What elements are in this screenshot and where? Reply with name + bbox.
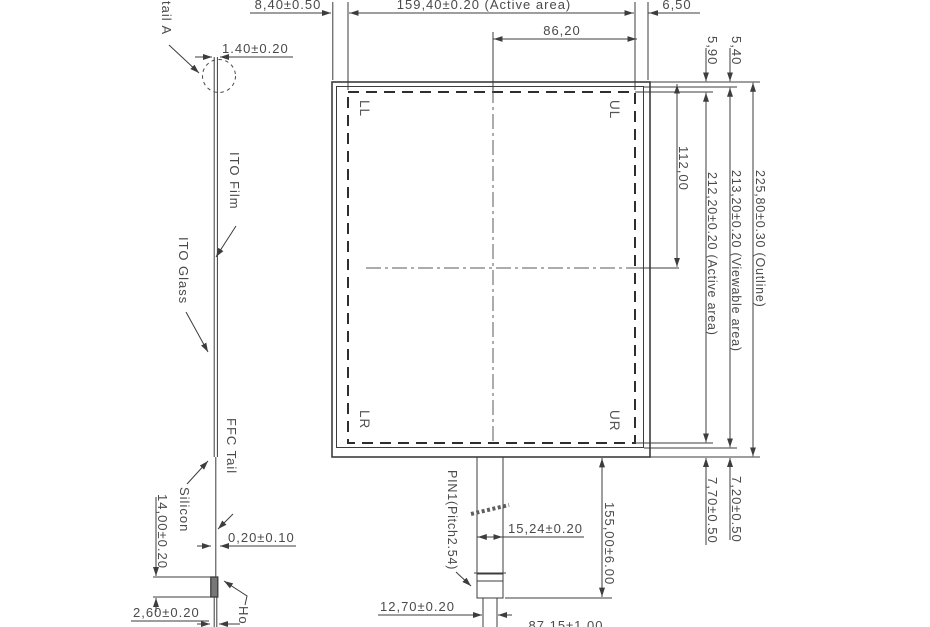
- side-panel-profile: [211, 57, 218, 627]
- hot-bar-label: Ho: [236, 606, 251, 625]
- ito-film-label: ITO Film: [227, 152, 242, 210]
- dim-film-thickness: 0,20±0.10: [197, 530, 296, 546]
- dim-pin-span-text: 12,70±0.20: [380, 599, 455, 614]
- detail-a-label: tail A: [159, 1, 174, 35]
- dim-connector-thickness-text: 2,60±0.20: [133, 605, 200, 620]
- side-hotbar-block: [211, 577, 218, 597]
- corner-label-ur: UR: [607, 410, 622, 432]
- ito-film-leader: [216, 226, 236, 257]
- ffc-tail-leader: [218, 514, 233, 529]
- silicon-leader: [187, 461, 208, 484]
- corner-label-ul: UL: [607, 100, 622, 119]
- pin1-leader: [456, 572, 471, 586]
- ffc-tail-front: [471, 457, 509, 627]
- dim-connector-thickness: 2,60±0.20: [131, 605, 240, 624]
- dim-center-right-text: 86,20: [543, 23, 581, 38]
- silicon-label: Silicon: [177, 487, 192, 532]
- dim-stiffener-text: 14,00±0.20: [155, 494, 170, 569]
- ffc-tail-label: FFC Tail: [224, 418, 239, 474]
- ito-glass-leader: [186, 312, 208, 352]
- corner-label-ll: LL: [357, 100, 372, 117]
- dim-outline-height-text: 225,80±0.30 (Outline): [753, 170, 767, 308]
- outline-rect: [332, 82, 650, 457]
- front-view: LL UL LR UR 8,40±0.50 159,40±0.20 (Activ…: [250, 0, 767, 627]
- dim-bottom-active-text: 7,70±0.50: [705, 477, 720, 544]
- dim-left-margin-text: 8,40±0.50: [255, 0, 322, 12]
- dim-active-width-text: 159,40±0.20 (Active area): [397, 0, 572, 12]
- dim-active-height-text: 212,20±0.20 (Active area): [705, 172, 719, 336]
- hot-bar-leader: [224, 581, 247, 605]
- pin1-label: PIN1(Pitch2.54): [445, 470, 459, 570]
- drawing-canvas: tail A 1.40±0.20 ITO Film ITO Glass FFC …: [0, 0, 930, 627]
- viewable-area-rect: [337, 87, 644, 448]
- dim-tail-width-text: 15,24±0.20: [508, 521, 583, 536]
- top-dimensions: 8,40±0.50 159,40±0.20 (Active area) 6,50…: [250, 0, 700, 90]
- detail-a-leader: [169, 45, 199, 73]
- dim-top-active-text: 5,90: [705, 36, 720, 65]
- dim-bottom-viewable-text: 7,20±0.50: [729, 476, 744, 543]
- dim-film-thickness-text: 0,20±0.10: [228, 530, 295, 545]
- corner-label-lr: LR: [357, 410, 372, 429]
- dim-viewable-height-text: 213,20±0.20 (Viewable area): [729, 170, 743, 352]
- dim-top-viewable-text: 5,40: [729, 36, 744, 65]
- dim-panel-thickness-text: 1.40±0.20: [222, 41, 289, 56]
- dim-tail-length-text: 155,00±6.00: [602, 502, 617, 585]
- dim-tail-offset-text: 87,15±1.00: [529, 618, 604, 627]
- right-dimensions: 112,00 5,90 5,40 212,20±0.20 (Active are…: [635, 36, 767, 545]
- ito-glass-label: ITO Glass: [176, 237, 191, 304]
- detail-a-circle: [203, 60, 236, 93]
- dim-panel-thickness: 1.40±0.20: [195, 41, 293, 57]
- tail-connector: [477, 574, 503, 598]
- side-view: tail A 1.40±0.20 ITO Film ITO Glass FFC …: [131, 1, 296, 627]
- dim-right-margin-text: 6,50: [662, 0, 691, 12]
- dim-center-top-text: 112,00: [676, 146, 691, 191]
- technical-drawing: tail A 1.40±0.20 ITO Film ITO Glass FFC …: [0, 0, 930, 627]
